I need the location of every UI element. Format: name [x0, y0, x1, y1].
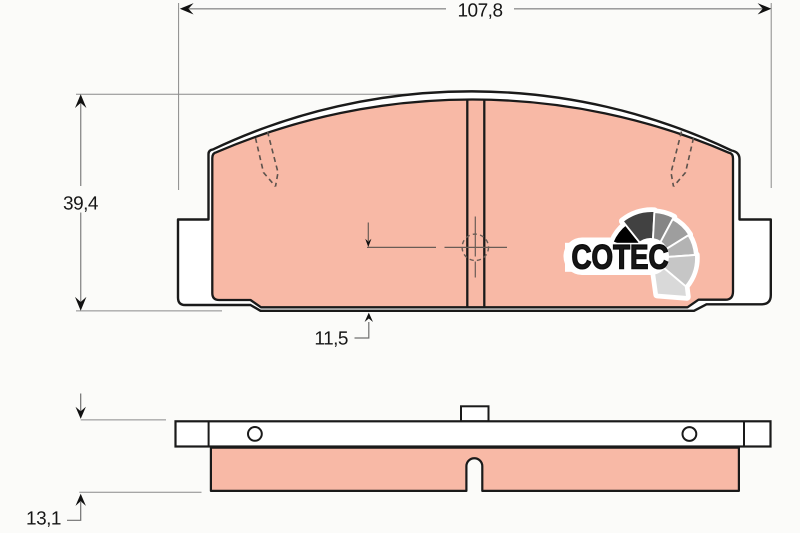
svg-text:13,1: 13,1	[26, 509, 61, 530]
svg-text:39,4: 39,4	[63, 194, 99, 215]
svg-text:COTEC: COTEC	[572, 239, 669, 277]
svg-text:107,8: 107,8	[457, 1, 502, 22]
svg-text:11,5: 11,5	[314, 329, 348, 350]
